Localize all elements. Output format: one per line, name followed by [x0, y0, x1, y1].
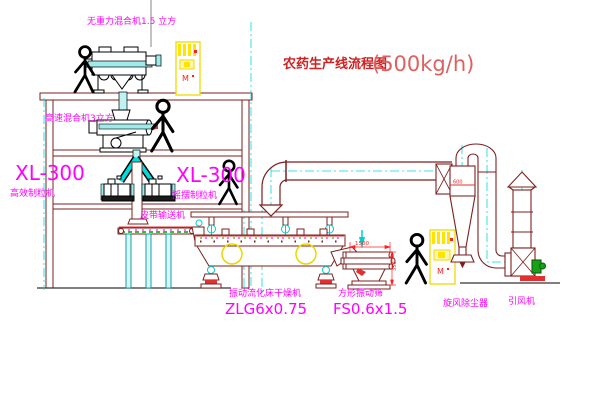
indicator-dot	[450, 238, 453, 241]
page-title-capacity: (500kg/h)	[372, 52, 474, 76]
fan-label: 引风机	[508, 295, 535, 307]
indicator-dot	[194, 50, 197, 53]
sieve-model-label: FS0.6x1.5	[333, 300, 407, 318]
gravity-mixer-label: 无重力混合机1.5 立方	[87, 15, 176, 27]
granulator-right-name-label: 摇摆制粒机	[172, 189, 217, 201]
sieve-height-dimension: 350	[392, 261, 398, 271]
fluid-bed-dryer	[191, 212, 357, 288]
sieve-name-label: 方形振动筛	[338, 287, 383, 299]
draft-fan	[505, 172, 546, 281]
granulator-right-model-label: XL-300	[176, 163, 246, 187]
granulator-left-name-label: 高效制粒机	[10, 187, 55, 199]
cabinet-bottom-label: M	[437, 267, 444, 276]
belt-conveyor	[118, 227, 195, 288]
granulator-left-model-label: XL-300	[15, 161, 85, 185]
high-speed-mixer-label: 高速混合机3立方	[45, 112, 114, 124]
granulator-left	[101, 176, 134, 201]
cad-flow-diagram: M	[0, 0, 600, 403]
worker-figure-1	[75, 47, 94, 92]
control-cabinet-bottom: M	[430, 230, 455, 284]
cyclone-dimension: 600	[453, 180, 463, 186]
belt-conveyor-label: 皮带输送机	[140, 209, 185, 221]
dryer-name-label: 振动流化床干燥机	[229, 287, 301, 299]
exhaust-duct	[260, 160, 452, 216]
worker-figure-2	[152, 100, 173, 151]
sieve-width-dimension: 1500	[355, 241, 369, 247]
diagram-canvas: M	[0, 0, 600, 403]
dryer-model-label: ZLG6x0.75	[225, 300, 307, 318]
cyclone-label: 旋风除尘器	[443, 297, 488, 309]
vibrating-sieve: 1500 350	[341, 230, 398, 289]
ground-lines	[37, 283, 560, 288]
control-cabinet-top: M	[176, 42, 200, 95]
cabinet-top-label: M	[182, 74, 189, 83]
gravity-free-mixer	[85, 47, 161, 114]
worker-figure-4	[406, 234, 426, 283]
